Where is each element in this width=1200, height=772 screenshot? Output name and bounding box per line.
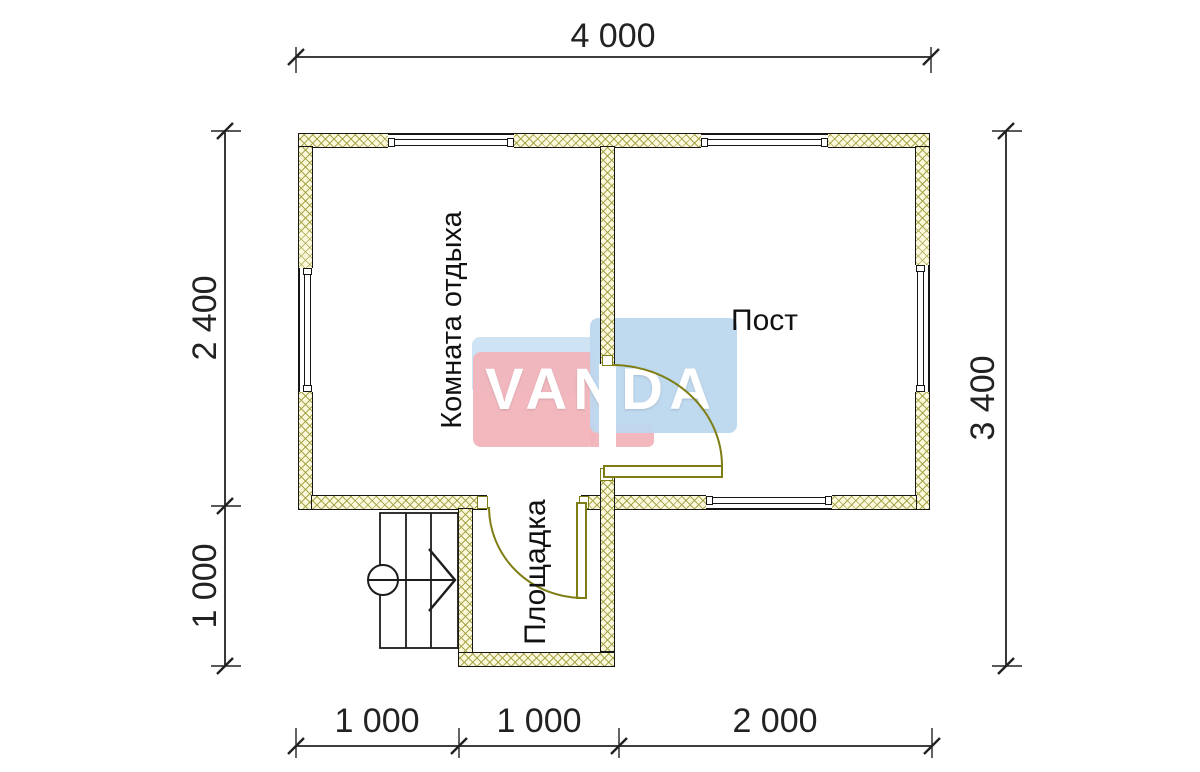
door-leaf-porch (577, 503, 586, 598)
dim-label-left-upper: 2 400 (186, 218, 224, 418)
window-left (298, 268, 313, 392)
wall-porch-left (458, 508, 473, 654)
dim-label-bottom-left: 1 000 (297, 702, 457, 741)
room-label-post: Пост (731, 304, 851, 338)
door-jamb-block (579, 496, 589, 509)
room-label-porch: Площадка (519, 472, 553, 672)
dim-label-right: 3 400 (964, 298, 1002, 498)
door-leaf-interior (604, 466, 722, 477)
window-jamb (388, 138, 395, 147)
window-jamb (701, 138, 708, 147)
dim-tick (217, 123, 233, 139)
window-sash (390, 139, 512, 146)
dim-tick (923, 49, 939, 65)
dim-tick (288, 49, 304, 65)
window-jamb (916, 385, 925, 392)
dim-label-bottom-middle: 1 000 (459, 702, 619, 741)
stair-start-circle (368, 565, 398, 595)
stairs-symbol (368, 513, 458, 648)
door-opening-interior (599, 364, 616, 471)
room-label-rest-room: Комната отдыха (435, 170, 469, 470)
window-jamb (303, 385, 312, 392)
dim-tick (924, 738, 940, 754)
window-jamb (706, 496, 713, 505)
door-jamb-block (602, 355, 613, 366)
window-sash (917, 267, 924, 390)
stair-direction-arrow (429, 549, 455, 611)
window-bottom-right (706, 495, 832, 510)
window-sash (703, 139, 826, 146)
window-jamb (916, 265, 925, 272)
dim-tick (998, 658, 1014, 674)
dim-tick (998, 123, 1014, 139)
door-jamb-block (600, 468, 613, 481)
window-jamb (821, 138, 828, 147)
dim-label-top: 4 000 (513, 17, 713, 56)
dim-label-left-lower: 1 000 (186, 486, 224, 686)
door-jamb-block (477, 496, 488, 509)
window-sash (708, 497, 830, 504)
window-sash (304, 270, 311, 390)
stairs-outline (380, 513, 458, 648)
dim-label-bottom-right: 2 000 (695, 702, 855, 741)
floor-plan: VANDA (0, 0, 1200, 772)
window-top-left (388, 133, 514, 148)
window-top-right (701, 133, 828, 148)
window-right (915, 265, 930, 392)
window-jamb (507, 138, 514, 147)
window-jamb (303, 268, 312, 275)
window-jamb (825, 496, 832, 505)
